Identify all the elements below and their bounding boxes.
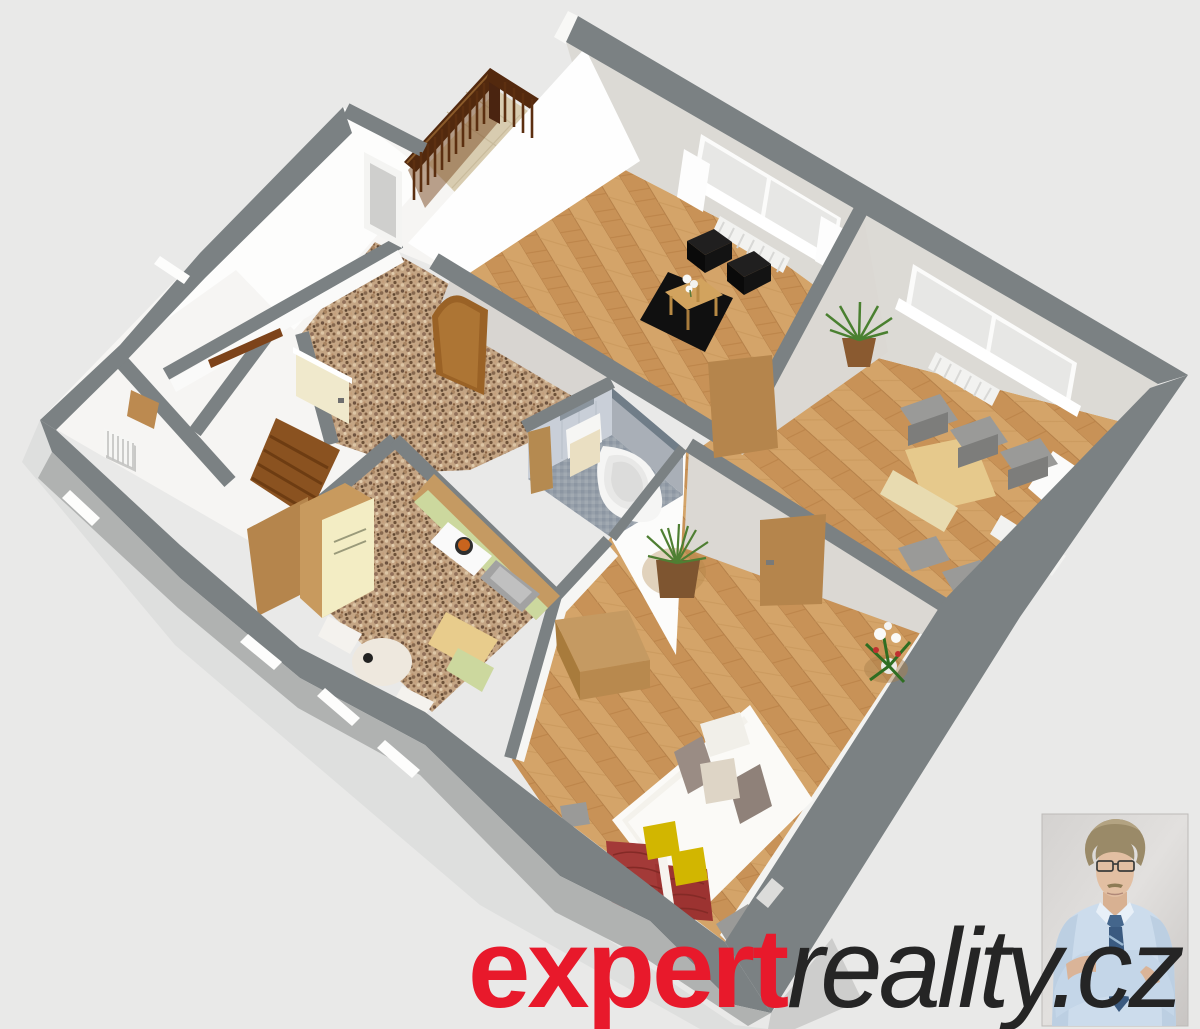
svg-text:reality.cz: reality.cz (787, 906, 1184, 1029)
svg-text:expert: expert (468, 906, 788, 1029)
